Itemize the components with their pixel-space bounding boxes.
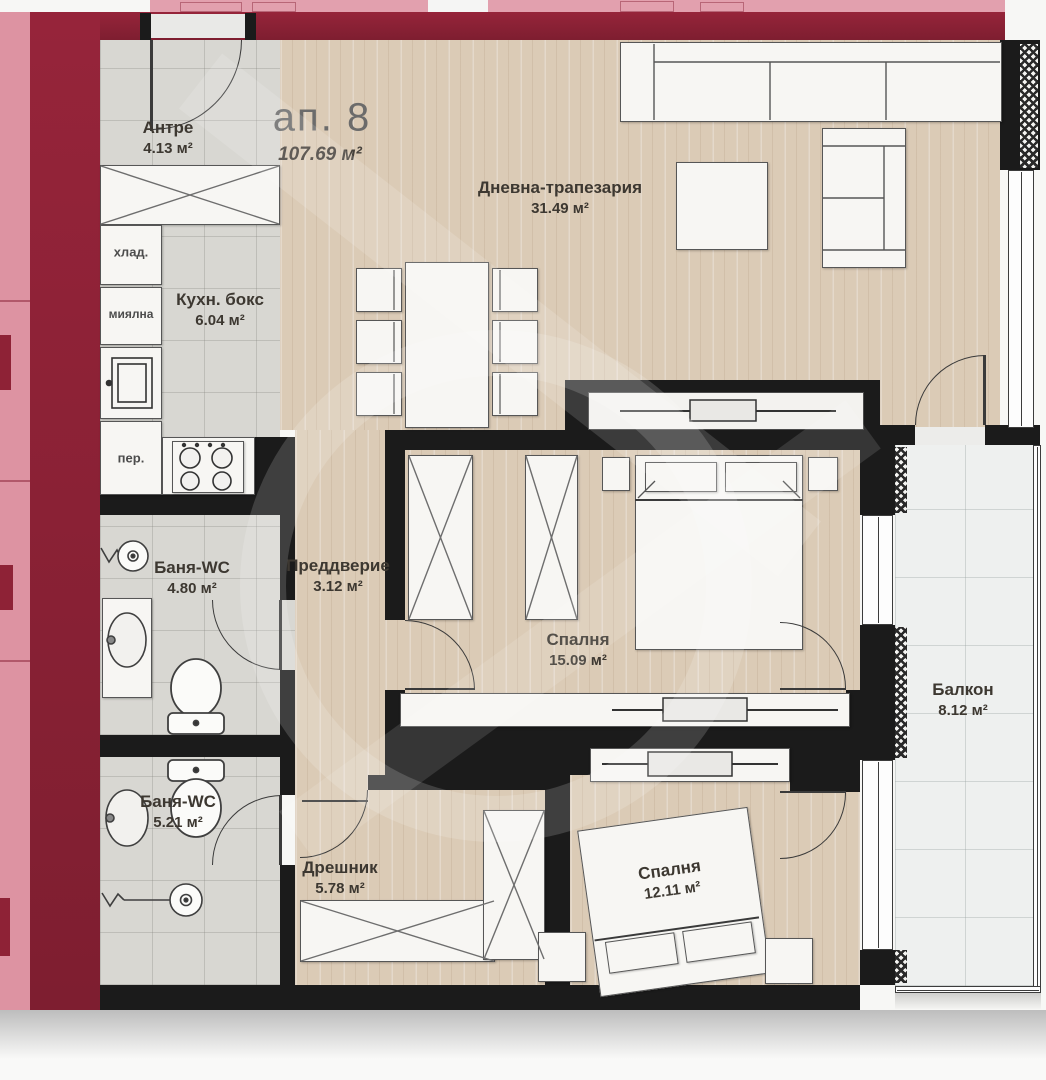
balcony-door-threshold xyxy=(915,427,985,445)
room-name: Антре xyxy=(143,117,194,138)
wall xyxy=(100,735,280,757)
wall xyxy=(385,430,570,450)
room-name: Преддверие xyxy=(286,555,390,576)
neighbor-block xyxy=(0,565,13,610)
entry-jamb xyxy=(245,13,256,40)
room-area: 8.12 м² xyxy=(932,700,993,721)
dining-chair xyxy=(356,372,402,416)
nightstand xyxy=(765,938,813,984)
room-area: 4.13 м² xyxy=(143,138,194,159)
dining-chair xyxy=(492,268,538,312)
nightstand xyxy=(538,932,586,982)
door-leaf xyxy=(780,688,846,690)
antre-label: Антре 4.13 м² xyxy=(143,117,194,159)
bedroom1-label: Спалня 15.09 м² xyxy=(547,629,610,671)
bed-double: Спалня 12.11 м² xyxy=(577,807,771,997)
wall-balcony xyxy=(860,625,895,760)
insulation-hatch xyxy=(895,627,907,758)
fridge-label: хлад. xyxy=(114,245,149,260)
living-room-label: Дневна-трапезария 31.49 м² xyxy=(478,177,642,219)
room-area: 15.09 м² xyxy=(547,650,610,671)
ground-shadow xyxy=(0,1010,1046,1080)
wall xyxy=(790,748,846,792)
insulation-hatch xyxy=(895,950,907,983)
balcony-railing-bottom xyxy=(895,986,1041,993)
vestibule-label: Преддверие 3.12 м² xyxy=(286,555,390,597)
nightstand xyxy=(808,457,838,491)
wardrobe xyxy=(483,810,545,960)
wall xyxy=(400,727,850,748)
dining-chair xyxy=(492,372,538,416)
floor-plan: Спалня 12.11 м² xyxy=(0,0,1046,1080)
neighbor-furniture xyxy=(620,1,674,12)
room-area: 5.21 м² xyxy=(140,812,216,833)
wall-balcony xyxy=(860,445,895,515)
dining-chair xyxy=(492,320,538,364)
stove xyxy=(172,441,244,493)
ground-shadow xyxy=(895,993,1041,1009)
hall-wardrobe xyxy=(100,165,280,225)
living-tv-console xyxy=(588,392,864,430)
room-name: Баня-WC xyxy=(140,791,216,812)
kitchen-label: Кухн. бокс 6.04 м² xyxy=(176,289,264,331)
bed-line xyxy=(635,499,803,501)
wall xyxy=(368,775,545,790)
room-area: 6.04 м² xyxy=(176,310,264,331)
wall xyxy=(860,425,915,445)
coffee-table xyxy=(676,162,768,250)
wall-bottom xyxy=(100,985,860,1012)
living-room-window xyxy=(1008,170,1034,428)
wall xyxy=(280,865,295,985)
room-name: Спалня xyxy=(547,629,610,650)
entry-opening xyxy=(150,14,246,38)
party-wall-left xyxy=(30,12,100,1010)
oven-cabinet xyxy=(100,347,162,419)
room-area: 4.80 м² xyxy=(154,578,230,599)
nightstand xyxy=(602,457,630,491)
insulation-hatch xyxy=(895,447,907,513)
neighbor-furniture xyxy=(180,2,242,12)
balcony-railing xyxy=(1033,445,1041,992)
bedroom1-window xyxy=(862,515,893,625)
bedroom2-console xyxy=(590,748,790,782)
wall xyxy=(385,748,590,775)
bedroom2-label: Спалня 12.11 м² xyxy=(637,855,705,905)
entry-jamb xyxy=(140,13,151,40)
wall-balcony xyxy=(860,950,895,985)
neighbor-line xyxy=(0,300,30,302)
neighbor-gap xyxy=(428,0,488,12)
washer-label: пер. xyxy=(118,451,145,466)
bath2-label: Баня-WC 5.21 м² xyxy=(140,791,216,833)
wardrobe xyxy=(408,455,473,620)
neighbor-line xyxy=(0,480,30,482)
bedroom2-window xyxy=(862,760,893,950)
room-area: 31.49 м² xyxy=(478,198,642,219)
vestibule-floor xyxy=(295,430,385,775)
dishwasher-label: миялна xyxy=(109,307,154,321)
room-area: 5.78 м² xyxy=(302,878,377,899)
apartment-total-area: 107.69 м² xyxy=(278,144,362,166)
wall xyxy=(985,425,1040,445)
pillow xyxy=(645,462,717,492)
vanity xyxy=(102,598,152,698)
pillow xyxy=(725,462,797,492)
dining-chair xyxy=(356,268,402,312)
closet-label: Дрешник 5.78 м² xyxy=(302,857,377,899)
dining-chair xyxy=(356,320,402,364)
armchair xyxy=(822,128,906,268)
neighbor-line xyxy=(0,660,30,662)
neighbor-unit-left xyxy=(0,12,30,1010)
apartment-number: ап. 8 xyxy=(273,96,371,141)
room-name: Балкон xyxy=(932,679,993,700)
neighbor-block xyxy=(0,335,11,390)
wardrobe xyxy=(525,455,578,620)
wall xyxy=(252,437,295,515)
balcony-label: Балкон 8.12 м² xyxy=(932,679,993,721)
neighbor-block xyxy=(0,898,10,956)
room-area: 3.12 м² xyxy=(286,576,390,597)
dining-table xyxy=(405,262,489,428)
neighbor-furniture xyxy=(252,2,296,12)
insulation-hatch xyxy=(1020,44,1038,168)
sofa xyxy=(620,42,1002,122)
wall xyxy=(280,670,295,795)
bath1-label: Баня-WC 4.80 м² xyxy=(154,557,230,599)
room-name: Кухн. бокс xyxy=(176,289,264,310)
room-name: Дневна-трапезария xyxy=(478,177,642,198)
wardrobe xyxy=(300,900,495,962)
neighbor-furniture xyxy=(700,2,744,12)
bedroom1-console xyxy=(400,693,850,727)
room-name: Баня-WC xyxy=(154,557,230,578)
room-name: Дрешник xyxy=(302,857,377,878)
